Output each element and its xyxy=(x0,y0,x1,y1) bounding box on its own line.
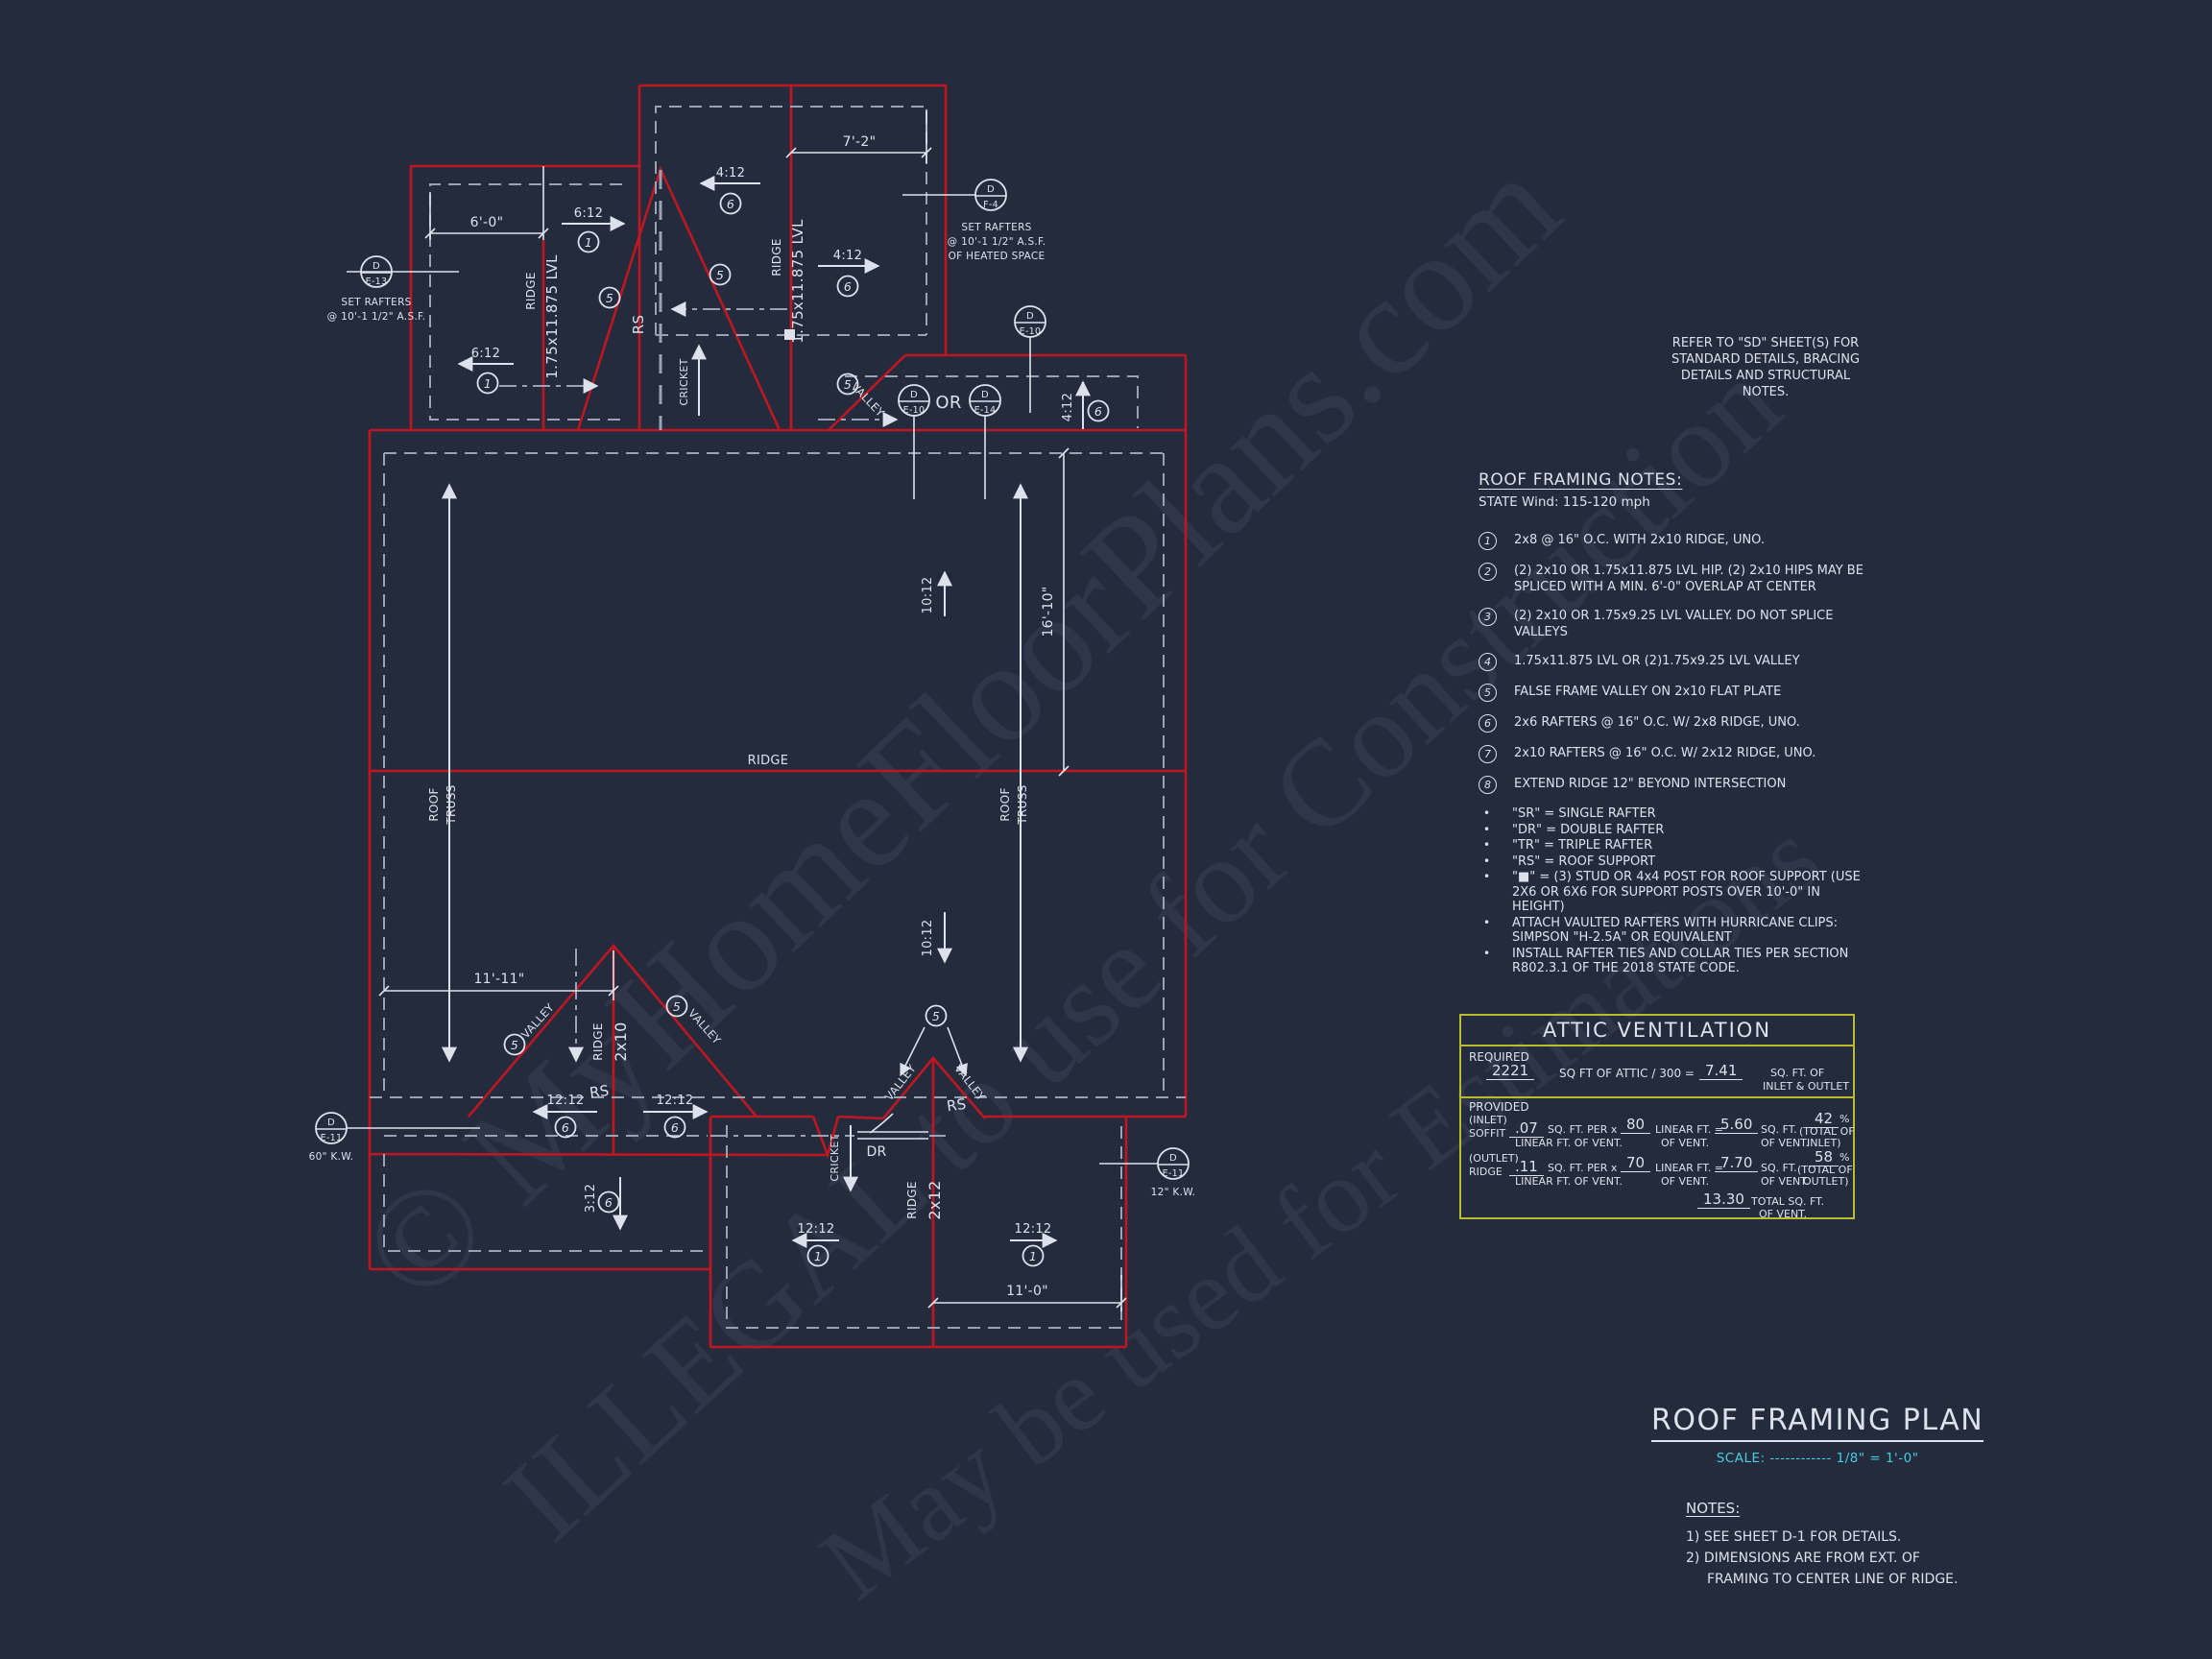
detail-bubble-e10-or: D E-10 xyxy=(899,385,929,416)
roof-truss-label: TRUSS xyxy=(1016,784,1029,825)
detail-bubble-e11-left: D E-11 60" K.W. xyxy=(309,1113,354,1163)
pitch-label: 10:12 xyxy=(921,920,935,957)
keynote-5: 5 xyxy=(673,999,681,1014)
detail-note: @ 10'-1 1/2" A.S.F. xyxy=(327,311,426,323)
framing-note-bullet: •"SR" = SINGLE RAFTER xyxy=(1479,806,1920,822)
keynote-5: 5 xyxy=(606,291,613,305)
cricket-label: CRICKET xyxy=(678,358,690,405)
lf-label: LINEAR FT. = xyxy=(1655,1123,1723,1136)
dim-label: 6'-0" xyxy=(470,215,504,230)
ridge-label: RIDGE xyxy=(905,1181,919,1219)
keynote-6: 6 xyxy=(605,1195,613,1210)
roof-framing-plan-sheet: © MyHomeFloorPlans.com ILLEGAL to use fo… xyxy=(0,0,2212,1659)
pitch-label: 12:12 xyxy=(798,1222,835,1237)
valley-label: VALLEY xyxy=(849,380,888,421)
bullet-icon: • xyxy=(1479,947,1495,960)
detail-sheet: E-11 xyxy=(1163,1168,1185,1179)
ridge-label: RIDGE xyxy=(748,754,789,768)
detail-note: OF HEATED SPACE xyxy=(949,251,1046,262)
detail-note: SET RAFTERS xyxy=(961,222,1031,233)
framing-note-item: 12x8 @ 16" O.C. WITH 2x10 RIDGE, UNO. xyxy=(1479,532,1920,550)
attic-ventilation-table: ATTIC VENTILATION REQUIRED 2221 SQ FT OF… xyxy=(1459,1014,1855,1219)
keynote-1: 1 xyxy=(1029,1249,1037,1263)
sheet-title: ROOF FRAMING PLAN xyxy=(1651,1404,1984,1442)
provided-label: PROVIDED xyxy=(1469,1100,1529,1114)
refer-note-line: REFER TO "SD" SHEET(S) FOR xyxy=(1664,335,1867,351)
ridge-label: RIDGE xyxy=(591,1022,605,1061)
pitch-label: 3:12 xyxy=(584,1184,598,1213)
keynote-number: 1 xyxy=(1479,532,1497,550)
inlet-length-value: 80 xyxy=(1621,1116,1650,1134)
framing-note-bullet: •"DR" = DOUBLE RAFTER xyxy=(1479,823,1920,838)
detail-letter: D xyxy=(373,261,380,272)
keynote-number: 2 xyxy=(1479,563,1497,581)
roof-support-label: RS xyxy=(589,1082,611,1102)
refer-note-line: STANDARD DETAILS, BRACING xyxy=(1664,351,1867,368)
note-line: "TR" = TRIPLE RAFTER xyxy=(1512,838,1652,854)
sheet-note-line: FRAMING TO CENTER LINE OF RIDGE. xyxy=(1686,1569,1958,1590)
keynote-number: 8 xyxy=(1479,776,1497,794)
keynote-5: 5 xyxy=(932,1009,940,1023)
percent-sign: % xyxy=(1839,1113,1849,1125)
detail-sheet: E-13 xyxy=(366,276,388,287)
pitch-label: 4:12 xyxy=(833,249,862,263)
bullet-icon: • xyxy=(1479,854,1495,868)
pitch-label: 12:12 xyxy=(547,1094,585,1108)
outlet-area-value: 7.70 xyxy=(1715,1154,1758,1172)
ridge-size-label: 2x12 xyxy=(926,1180,944,1219)
attic-table-title: ATTIC VENTILATION xyxy=(1461,1019,1853,1042)
roof-truss-label: ROOF xyxy=(427,787,441,821)
detail-sheet: E-10 xyxy=(1020,326,1042,337)
framing-note-bullet: •"■" = (3) STUD OR 4x4 POST FOR ROOF SUP… xyxy=(1479,870,1920,915)
keynote-1: 1 xyxy=(585,235,592,250)
per-label: SQ. FT. PER x xyxy=(1548,1162,1617,1174)
kneewall-note: 60" K.W. xyxy=(309,1151,354,1163)
inlet-area-value: 5.60 xyxy=(1715,1116,1758,1134)
outlet-close-label: OUTLET) xyxy=(1803,1175,1849,1188)
framing-note-bullet: •INSTALL RAFTER TIES AND COLLAR TIES PER… xyxy=(1479,947,1920,976)
dim-label: 16'-10" xyxy=(1041,586,1056,637)
sheet-note-line: 2) DIMENSIONS ARE FROM EXT. OF xyxy=(1686,1548,1958,1569)
ridge-row-label: RIDGE xyxy=(1469,1166,1503,1178)
keynote-1: 1 xyxy=(814,1249,822,1263)
note-line: "■" = (3) STUD OR 4x4 POST FOR ROOF SUPP… xyxy=(1512,870,1861,885)
required-formula: SQ FT OF ATTIC / 300 = xyxy=(1559,1067,1695,1080)
note-line: (2) 2x10 OR 1.75x11.875 LVL HIP. (2) 2x1… xyxy=(1514,563,1863,579)
total-vent-value: 13.30 xyxy=(1697,1190,1750,1209)
ridge-label: RIDGE xyxy=(524,272,538,310)
leader-lines xyxy=(347,195,1158,1164)
sqft-label: SQ. FT. xyxy=(1761,1162,1797,1174)
outlet-length-value: 70 xyxy=(1621,1154,1650,1172)
dimension-lines xyxy=(379,109,1126,1311)
note-line: 2X6 OR 6X6 FOR SUPPORT POSTS OVER 10'-0"… xyxy=(1512,885,1861,901)
scale-label: SCALE: xyxy=(1717,1451,1766,1466)
dim-label: 11'-0" xyxy=(1006,1284,1048,1299)
note-line: FALSE FRAME VALLEY ON 2x10 FLAT PLATE xyxy=(1514,684,1781,700)
detail-sheet: E-14 xyxy=(974,405,997,416)
pitch-label: 6:12 xyxy=(471,347,500,361)
keynote-1: 1 xyxy=(484,376,492,391)
total-label: TOTAL SQ. FT. xyxy=(1751,1195,1824,1208)
dim-label: 11'-11" xyxy=(473,972,524,987)
cricket-label: CRICKET xyxy=(829,1134,841,1181)
note-line: "RS" = ROOF SUPPORT xyxy=(1512,854,1655,870)
double-rafter-label: DR xyxy=(866,1144,886,1160)
pitch-label: 12:12 xyxy=(657,1094,694,1108)
keynote-number: 5 xyxy=(1479,684,1497,702)
framing-notes-title: ROOF FRAMING NOTES: xyxy=(1479,470,1920,490)
note-line: 2x10 RAFTERS @ 16" O.C. W/ 2x12 RIDGE, U… xyxy=(1514,745,1815,761)
detail-bubble-e14: D E-14 xyxy=(970,385,1000,416)
required-unit2: INLET & OUTLET xyxy=(1763,1080,1849,1093)
keynote-6: 6 xyxy=(562,1120,569,1135)
detail-bubbles: D E-13 SET RAFTERS @ 10'-1 1/2" A.S.F. D… xyxy=(309,180,1196,1198)
detail-bubble-e11-right: D E-11 12" K.W. xyxy=(1151,1148,1196,1198)
keynote-number: 3 xyxy=(1479,608,1497,626)
framing-notes-wind: STATE Wind: 115-120 mph xyxy=(1479,494,1920,510)
detail-note: SET RAFTERS xyxy=(341,297,411,308)
pitch-label: 6:12 xyxy=(574,206,603,221)
percent-sign: % xyxy=(1839,1151,1849,1164)
note-line: 2x8 @ 16" O.C. WITH 2x10 RIDGE, UNO. xyxy=(1514,532,1765,548)
bullet-icon: • xyxy=(1479,870,1495,883)
note-line: INSTALL RAFTER TIES AND COLLAR TIES PER … xyxy=(1512,947,1848,962)
note-line: HEIGHT) xyxy=(1512,900,1861,915)
valley-label: VALLEY xyxy=(685,1006,724,1046)
sheet-note-line: 1) SEE SHEET D-1 FOR DETAILS. xyxy=(1686,1527,1958,1548)
detail-sheet: E-10 xyxy=(903,405,926,416)
attic-area-value: 2221 xyxy=(1486,1062,1534,1080)
scale-note: SCALE: ------------ 1/8" = 1'-0" xyxy=(1651,1451,1984,1466)
keynote-5: 5 xyxy=(716,268,724,282)
sheet-notes-title: NOTES: xyxy=(1686,1498,1958,1519)
required-vent-value: 7.41 xyxy=(1699,1062,1743,1080)
pitch-label: 12:12 xyxy=(1015,1222,1052,1237)
keynote-number: 4 xyxy=(1479,653,1497,671)
detail-letter: D xyxy=(981,390,989,400)
framing-note-item: 8EXTEND RIDGE 12" BEYOND INTERSECTION xyxy=(1479,776,1920,794)
keynote-5: 5 xyxy=(511,1038,518,1052)
note-line: R802.3.1 OF THE 2018 STATE CODE. xyxy=(1512,961,1848,976)
or-label: OR xyxy=(935,393,961,413)
framing-note-item: 41.75x11.875 LVL OR (2)1.75x9.25 LVL VAL… xyxy=(1479,653,1920,671)
framing-note-item: 62x6 RAFTERS @ 16" O.C. W/ 2x8 RIDGE, UN… xyxy=(1479,714,1920,733)
scale-dots: ------------ xyxy=(1769,1451,1831,1466)
roof-support-label: RS xyxy=(630,315,647,335)
note-line: EXTEND RIDGE 12" BEYOND INTERSECTION xyxy=(1514,776,1786,792)
note-line: "DR" = DOUBLE RAFTER xyxy=(1512,823,1664,838)
note-line: ATTACH VAULTED RAFTERS WITH HURRICANE CL… xyxy=(1512,916,1838,931)
of-vent-label: OF VENT. xyxy=(1661,1137,1709,1149)
detail-sheet: E-11 xyxy=(321,1133,343,1143)
detail-bubble-e10-right: D E-10 xyxy=(1015,306,1046,337)
roof-truss-label: TRUSS xyxy=(445,784,458,825)
note-line: 1.75x11.875 LVL OR (2)1.75x9.25 LVL VALL… xyxy=(1514,653,1800,669)
kneewall-note: 12" K.W. xyxy=(1151,1187,1196,1198)
lf-label: LINEAR FT. = xyxy=(1655,1162,1723,1174)
per-sub-label: LINEAR FT. OF VENT. xyxy=(1515,1175,1623,1188)
roof-support-label: RS xyxy=(946,1095,968,1116)
framing-note-item: 72x10 RAFTERS @ 16" O.C. W/ 2x12 RIDGE, … xyxy=(1479,745,1920,763)
detail-note: @ 10'-1 1/2" A.S.F. xyxy=(948,236,1046,248)
framing-note-item: 3(2) 2x10 OR 1.75x9.25 LVL VALLEY. DO NO… xyxy=(1479,608,1920,640)
pitch-label: 4:12 xyxy=(1061,393,1075,421)
ridge-size-label: 1.75x11.875 LVL xyxy=(789,219,806,344)
per-label: SQ. FT. PER x xyxy=(1548,1123,1617,1136)
keynote-number: 7 xyxy=(1479,745,1497,763)
framing-note-item: 2(2) 2x10 OR 1.75x11.875 LVL HIP. (2) 2x… xyxy=(1479,563,1920,595)
refer-note: REFER TO "SD" SHEET(S) FOR STANDARD DETA… xyxy=(1664,335,1867,400)
framing-note-bullet: •"TR" = TRIPLE RAFTER xyxy=(1479,838,1920,854)
of-vent-label: OF VENT. xyxy=(1761,1137,1809,1149)
ridge-size-label: 2x10 xyxy=(612,1022,630,1061)
detail-letter: D xyxy=(1169,1153,1177,1164)
note-line: VALLEYS xyxy=(1514,624,1833,640)
title-block: ROOF FRAMING PLAN SCALE: ------------ 1/… xyxy=(1651,1404,1984,1466)
soffit-label: SOFFIT xyxy=(1469,1127,1505,1140)
keynote-6: 6 xyxy=(727,197,734,211)
inlet-label: (INLET) xyxy=(1469,1114,1507,1126)
framing-note-item: 5FALSE FRAME VALLEY ON 2x10 FLAT PLATE xyxy=(1479,684,1920,702)
pitch-label: 10:12 xyxy=(921,577,935,614)
keynote-6: 6 xyxy=(844,279,852,294)
refer-note-line: DETAILS AND STRUCTURAL NOTES. xyxy=(1664,368,1867,400)
pitch-label: 4:12 xyxy=(716,166,745,180)
note-line: SIMPSON "H-2.5A" OR EQUIVALENT xyxy=(1512,930,1838,946)
per-sub-label: LINEAR FT. OF VENT. xyxy=(1515,1137,1623,1149)
of-vent-label: OF VENT. xyxy=(1661,1175,1709,1188)
roof-framing-notes: ROOF FRAMING NOTES: STATE Wind: 115-120 … xyxy=(1479,470,1920,976)
note-line: (2) 2x10 OR 1.75x9.25 LVL VALLEY. DO NOT… xyxy=(1514,608,1833,624)
keynote-number: 6 xyxy=(1479,714,1497,733)
keynote-6: 6 xyxy=(671,1120,679,1135)
detail-letter: D xyxy=(327,1118,335,1128)
roof-truss-label: ROOF xyxy=(998,787,1012,821)
detail-sheet: F-4 xyxy=(983,200,998,210)
required-unit: SQ. FT. OF xyxy=(1770,1067,1824,1079)
total-sub-label: OF VENT. xyxy=(1759,1208,1807,1220)
of-vent-label: OF VENT. xyxy=(1761,1175,1809,1188)
scale-value: 1/8" = 1'-0" xyxy=(1837,1451,1919,1466)
keynote-5: 5 xyxy=(844,377,852,392)
framing-note-bullet: •"RS" = ROOF SUPPORT xyxy=(1479,854,1920,870)
bullet-icon: • xyxy=(1479,806,1495,820)
ridge-size-label: 1.75x11.875 LVL xyxy=(543,254,561,379)
detail-letter: D xyxy=(1026,311,1034,322)
note-line: 2x6 RAFTERS @ 16" O.C. W/ 2x8 RIDGE, UNO… xyxy=(1514,714,1800,731)
framing-note-bullet: •ATTACH VAULTED RAFTERS WITH HURRICANE C… xyxy=(1479,916,1920,946)
bullet-icon: • xyxy=(1479,916,1495,929)
sqft-label: SQ. FT. xyxy=(1761,1123,1797,1136)
note-line: "SR" = SINGLE RAFTER xyxy=(1512,806,1656,822)
bullet-icon: • xyxy=(1479,823,1495,836)
dim-label: 7'-2" xyxy=(843,134,877,150)
sheet-notes: NOTES: 1) SEE SHEET D-1 FOR DETAILS. 2) … xyxy=(1686,1498,1958,1590)
outlet-rate-value: .11 xyxy=(1509,1158,1544,1176)
detail-letter: D xyxy=(987,184,995,195)
detail-letter: D xyxy=(910,390,918,400)
ridge-label: RIDGE xyxy=(770,238,783,276)
inlet-rate-value: .07 xyxy=(1509,1119,1544,1138)
note-line: SPLICED WITH A MIN. 6'-0" OVERLAP AT CEN… xyxy=(1514,579,1863,595)
bullet-icon: • xyxy=(1479,838,1495,852)
detail-bubble-f4: D F-4 SET RAFTERS @ 10'-1 1/2" A.S.F. OF… xyxy=(948,180,1046,262)
keynote-6: 6 xyxy=(1094,404,1102,419)
